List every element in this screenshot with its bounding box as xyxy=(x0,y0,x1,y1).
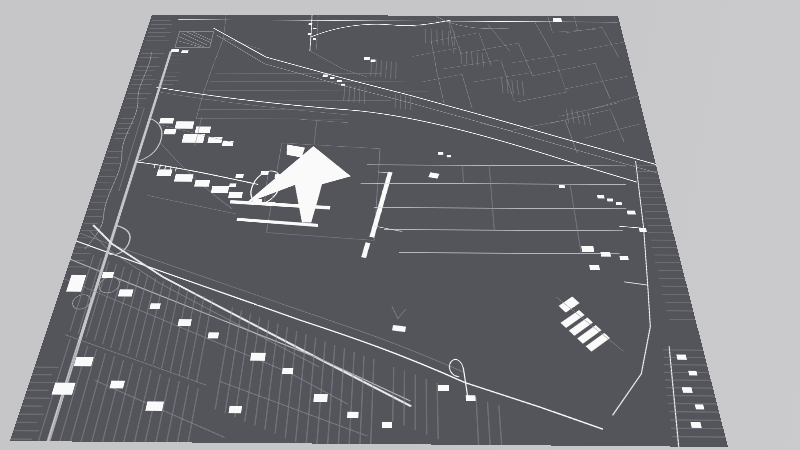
map-plane xyxy=(10,15,728,447)
render-viewport[interactable] xyxy=(0,0,800,450)
